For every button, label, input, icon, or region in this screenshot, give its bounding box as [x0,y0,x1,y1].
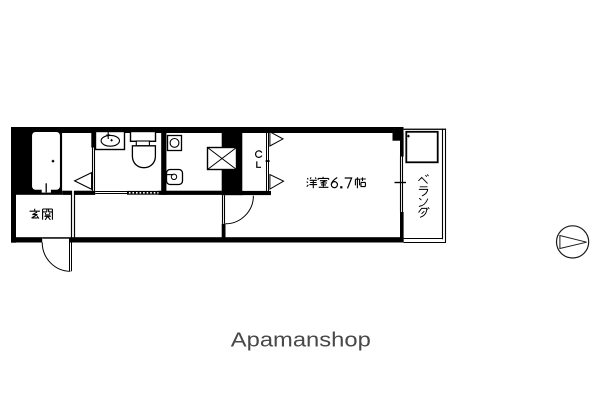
svg-text:Apamanshop: Apamanshop [231,329,371,351]
